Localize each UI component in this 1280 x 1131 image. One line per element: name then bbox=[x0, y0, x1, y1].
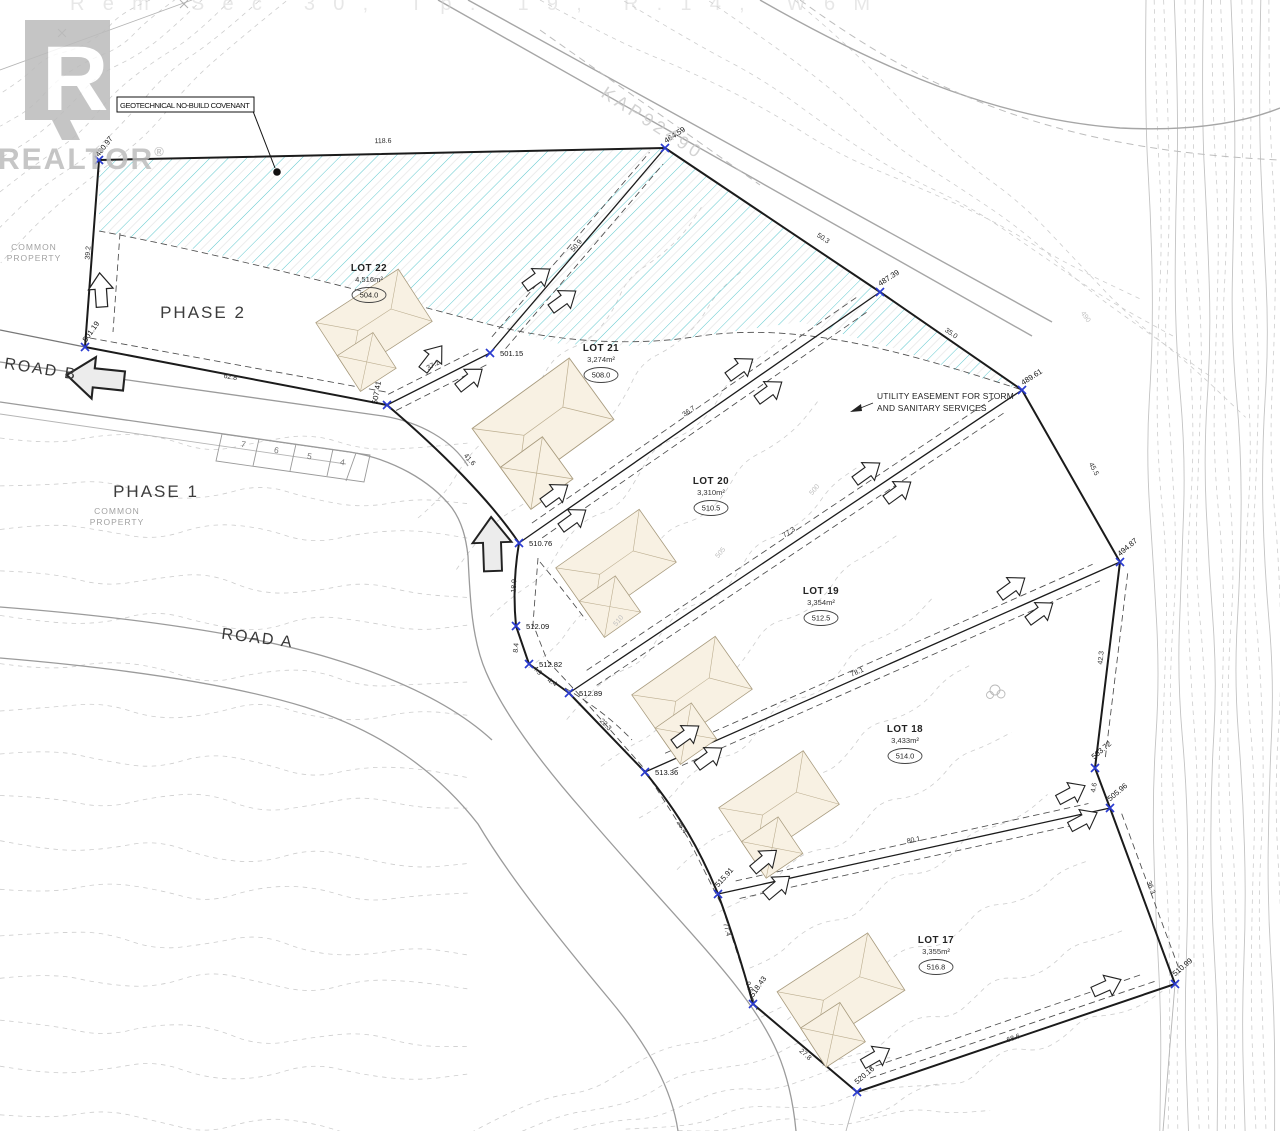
dimension-label: 118.6 bbox=[374, 138, 391, 145]
elevation-marker-label: 505.96 bbox=[1106, 781, 1130, 803]
leader-arrow-icon bbox=[850, 404, 862, 412]
tree-symbol-icon bbox=[987, 685, 1006, 699]
contour-elevation-label: 490 bbox=[1079, 310, 1091, 324]
flow-arrow-icon bbox=[880, 473, 918, 509]
parking-stalls bbox=[216, 434, 370, 482]
dimension-label: 80.1 bbox=[906, 836, 921, 846]
parking-stall-number: 4 bbox=[339, 457, 346, 468]
lot-area-label: 3,354m² bbox=[807, 598, 835, 607]
lot-name-label: LOT 19 bbox=[803, 586, 839, 597]
parking-stall-number: 5 bbox=[306, 451, 313, 462]
flow-arrow-icon bbox=[87, 272, 114, 308]
site-plan-drawing: 490500505510 480.97464.59487.39489.61494… bbox=[0, 0, 1280, 1131]
dimension-label: 42.3 bbox=[1097, 651, 1105, 665]
realtor-logo-letter: R bbox=[42, 28, 108, 130]
contour-elevation-label: 505 bbox=[714, 546, 727, 560]
parking-stall-number: 6 bbox=[273, 445, 280, 456]
house-footprint-lot-19 bbox=[632, 636, 764, 764]
dimension-label: 68.6 bbox=[1006, 1033, 1021, 1044]
lot-area-label: 3,310m² bbox=[697, 488, 725, 497]
elevation-marker-label: 494.87 bbox=[1116, 536, 1140, 558]
contour-elevation-label: 500 bbox=[808, 483, 821, 497]
realtor-wordmark: REALTOR® bbox=[0, 143, 166, 176]
elevation-marker-label: 515.91 bbox=[713, 866, 735, 889]
survey-point-icon bbox=[641, 768, 649, 776]
dimension-label: 77.4 bbox=[721, 922, 732, 937]
lot-name-label: LOT 17 bbox=[918, 935, 954, 946]
common-property-label: COMMON bbox=[11, 242, 57, 252]
flow-arrow-icon bbox=[1022, 594, 1060, 630]
dimension-label: 27.8 bbox=[798, 1048, 813, 1062]
phase-label: PHASE 1 bbox=[113, 482, 199, 501]
elevation-marker-label: 510.99 bbox=[1171, 956, 1195, 978]
utility-note-line1: UTILITY EASEMENT FOR STORM bbox=[877, 391, 1014, 401]
road-name-label: ROAD B bbox=[3, 355, 78, 383]
road-name-label: ROAD A bbox=[221, 626, 295, 652]
area-text-labels: PHASE 2PHASE 1ROAD BROAD ACOMMONPROPERTY… bbox=[3, 242, 294, 651]
lot-elevation-label: 512.5 bbox=[812, 614, 831, 623]
common-property-label: PROPERTY bbox=[90, 517, 145, 527]
lot-area-label: 3,274m² bbox=[587, 355, 615, 364]
lot-name-label: LOT 22 bbox=[351, 263, 387, 274]
lot-elevation-label: 514.0 bbox=[896, 752, 915, 761]
lot-name-label: LOT 20 bbox=[693, 476, 729, 487]
dimension-label: 4.4 bbox=[546, 677, 558, 688]
flow-arrow-icon bbox=[451, 360, 489, 396]
house-footprint-lot-18 bbox=[719, 751, 851, 879]
dimension-label: 36.7 bbox=[682, 405, 697, 419]
dimension-label: 39.2 bbox=[85, 246, 93, 260]
elevation-marker-label: 513.36 bbox=[655, 768, 678, 777]
common-property-label: PROPERTY bbox=[7, 253, 62, 263]
lot-labels: LOT 224,516m²504.0LOT 213,274m²508.0LOT … bbox=[351, 263, 954, 975]
site-plan-page: 490500505510 480.97464.59487.39489.61494… bbox=[0, 0, 1280, 1131]
elevation-marker-label: 512.82 bbox=[539, 660, 562, 669]
lot-name-label: LOT 18 bbox=[887, 724, 923, 735]
dimension-label: 25.4 bbox=[675, 820, 688, 835]
dimension-label: 8.4 bbox=[513, 643, 521, 653]
flow-arrow-icon bbox=[857, 1039, 895, 1073]
flow-arrow-icon bbox=[1089, 969, 1126, 1002]
no-build-covenant-hatch-area bbox=[99, 148, 1022, 390]
elevation-marker-label: 501.15 bbox=[500, 349, 523, 358]
parking-stall-number: 7 bbox=[240, 439, 247, 450]
lot-area-label: 3,355m² bbox=[922, 947, 950, 956]
proposed-house-footprints bbox=[316, 269, 917, 1067]
elevation-marker-label: 503.72 bbox=[1090, 739, 1114, 761]
lot-elevation-label: 516.8 bbox=[927, 963, 946, 972]
survey-point-icon bbox=[486, 349, 494, 357]
utility-easement-note: UTILITY EASEMENT FOR STORM AND SANITARY … bbox=[850, 391, 1014, 413]
common-property-label: COMMON bbox=[94, 506, 140, 516]
road-edges bbox=[0, 330, 1175, 1131]
dimension-label: 62.8 bbox=[223, 373, 238, 382]
flow-arrow-icon bbox=[414, 339, 450, 377]
dimension-label: 4.6 bbox=[1090, 782, 1099, 793]
lot-elevation-label: 510.5 bbox=[702, 504, 721, 513]
dimension-label: 77.3 bbox=[782, 526, 797, 539]
elevation-marker-label: 512.09 bbox=[526, 622, 549, 631]
flow-arrow-icon bbox=[1065, 803, 1102, 837]
house-footprint-lot-21 bbox=[472, 358, 628, 509]
elevation-marker-label: 512.89 bbox=[579, 689, 602, 698]
elevation-marker-label: 501.19 bbox=[81, 319, 102, 343]
elevation-marker-label: 510.76 bbox=[529, 539, 552, 548]
legal-description-watermark: Rem Sec 30, Tp. 19, R.14, W6M bbox=[70, 0, 870, 15]
covenant-point-icon bbox=[273, 168, 281, 176]
lot-area-label: 4,516m² bbox=[355, 275, 383, 284]
dimension-label: 45.5 bbox=[1087, 462, 1100, 477]
utility-note-line2: AND SANITARY SERVICES bbox=[877, 403, 987, 413]
lot-elevation-label: 504.0 bbox=[360, 291, 379, 300]
lot-name-label: LOT 21 bbox=[583, 343, 619, 354]
house-footprint-lot-17 bbox=[777, 933, 917, 1067]
dimension-label: 18.9 bbox=[511, 579, 519, 593]
covenant-label: GEOTECHNICAL NO-BUILD COVENANT bbox=[120, 101, 250, 110]
phase-label: PHASE 2 bbox=[160, 303, 246, 322]
elevation-marker-label: 487.39 bbox=[876, 268, 900, 288]
lot-area-label: 3,433m² bbox=[891, 736, 919, 745]
dimension-label: 50.3 bbox=[815, 232, 830, 245]
dimension-label: 78.1 bbox=[850, 667, 865, 679]
elevation-marker-label: 489.61 bbox=[1019, 367, 1043, 387]
survey-point-icon bbox=[1018, 386, 1026, 394]
lot-elevation-label: 508.0 bbox=[592, 371, 611, 380]
